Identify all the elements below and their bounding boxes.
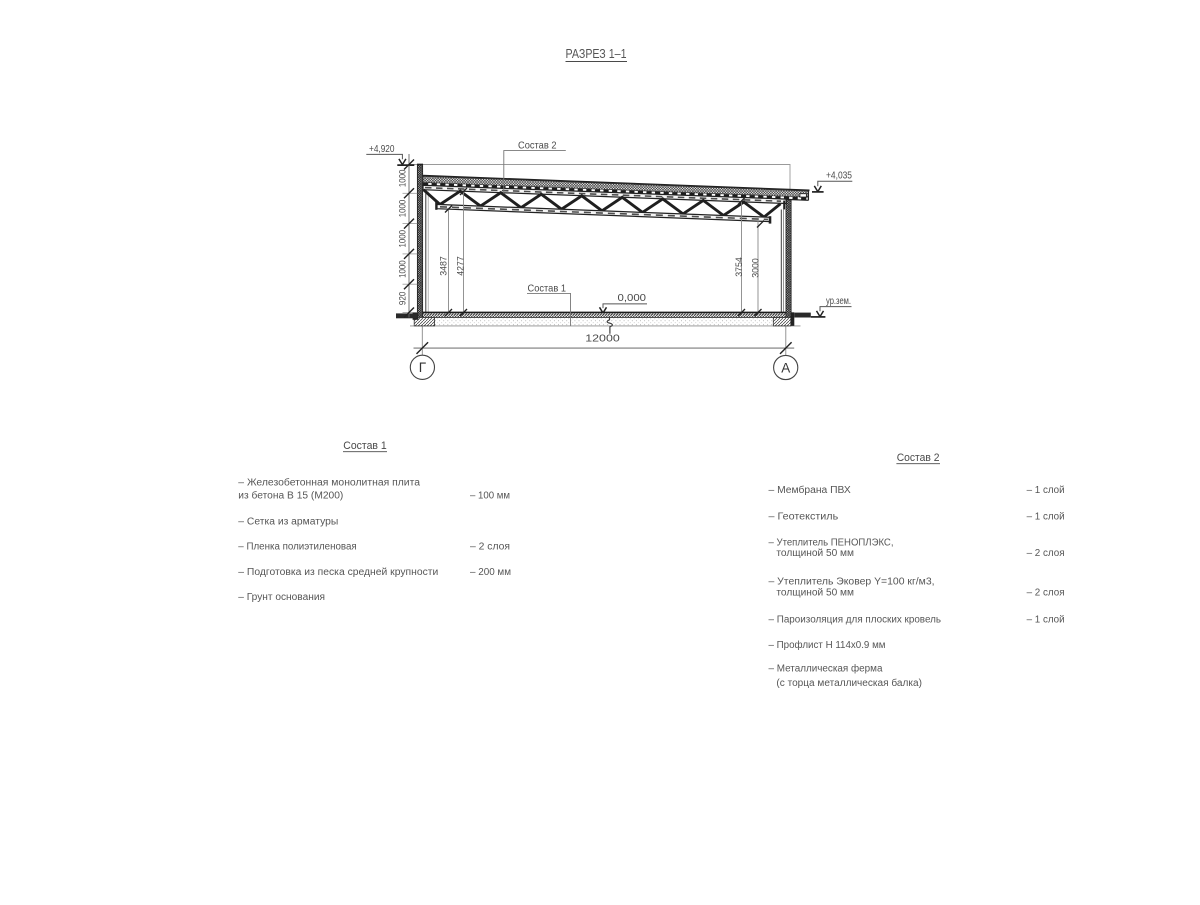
svg-text:3754: 3754 bbox=[734, 257, 744, 277]
svg-text:920: 920 bbox=[398, 292, 408, 306]
svg-text:толщиной 50 мм: толщиной 50 мм bbox=[776, 548, 854, 559]
svg-text:1000: 1000 bbox=[398, 170, 408, 188]
svg-text:РАЗРЕЗ 1–1: РАЗРЕЗ 1–1 bbox=[566, 46, 627, 61]
svg-text:Состав 2: Состав 2 bbox=[518, 140, 557, 152]
svg-text:– 1 слой: – 1 слой bbox=[1027, 615, 1065, 626]
svg-text:– Профлист Н 114х0.9 мм: – Профлист Н 114х0.9 мм bbox=[769, 639, 886, 651]
svg-text:1000: 1000 bbox=[398, 230, 408, 248]
svg-text:– 2 слоя: – 2 слоя bbox=[470, 541, 510, 552]
svg-text:– 1 слой: – 1 слой bbox=[1027, 512, 1065, 523]
svg-text:– Металлическая ферма: – Металлическая ферма bbox=[769, 663, 883, 675]
svg-text:0,000: 0,000 bbox=[618, 292, 647, 304]
svg-text:– Грунт основания: – Грунт основания bbox=[238, 592, 325, 603]
svg-text:+4,920: +4,920 bbox=[369, 143, 395, 155]
svg-text:– Утеплитель Эковер Y=100 кг/м: – Утеплитель Эковер Y=100 кг/м3, bbox=[769, 577, 935, 588]
svg-text:– 2 слоя: – 2 слоя bbox=[1027, 548, 1065, 559]
svg-text:Состав 1: Состав 1 bbox=[343, 440, 386, 452]
svg-text:ур.зем.: ур.зем. bbox=[826, 296, 851, 307]
svg-text:А: А bbox=[781, 360, 790, 375]
svg-text:– Утеплитель ПЕНОПЛЭКС,: – Утеплитель ПЕНОПЛЭКС, bbox=[769, 538, 894, 549]
svg-text:+4,035: +4,035 bbox=[826, 170, 852, 182]
svg-text:– Мембрана ПВХ: – Мембрана ПВХ bbox=[769, 484, 852, 496]
svg-text:– 200 мм: – 200 мм bbox=[470, 567, 511, 578]
svg-text:– Пароизоляция для плоских кро: – Пароизоляция для плоских кровель bbox=[769, 615, 942, 626]
svg-text:(с торца металлическая балка): (с торца металлическая балка) bbox=[776, 677, 922, 689]
svg-text:– 100 мм: – 100 мм bbox=[470, 490, 510, 501]
svg-text:– 2 слоя: – 2 слоя bbox=[1027, 588, 1065, 599]
svg-text:– Железобетонная монолитная: – Железобетонная монолитная плита bbox=[238, 477, 420, 489]
svg-text:4277: 4277 bbox=[455, 256, 465, 276]
svg-text:Состав 2: Состав 2 bbox=[897, 452, 940, 464]
svg-text:– Геотекстиль: – Геотекстиль bbox=[769, 512, 839, 523]
svg-text:– Пленка полиэтиленовая: – Пленка полиэтиленовая bbox=[238, 541, 356, 552]
svg-text:3000: 3000 bbox=[750, 258, 760, 278]
svg-text:толщиной 50 мм: толщиной 50 мм bbox=[776, 588, 854, 599]
svg-text:– Сетка из арматуры: – Сетка из арматуры bbox=[238, 516, 338, 527]
svg-text:12000: 12000 bbox=[585, 334, 620, 345]
svg-text:1000: 1000 bbox=[398, 260, 408, 278]
svg-text:из бетона В 15 (М200): из бетона В 15 (М200) bbox=[238, 489, 343, 501]
svg-text:3487: 3487 bbox=[439, 256, 449, 276]
svg-text:– Подготовка из песка средней: – Подготовка из песка средней крупности bbox=[238, 567, 438, 578]
svg-text:Состав 1: Состав 1 bbox=[528, 283, 567, 295]
svg-text:1000: 1000 bbox=[398, 200, 408, 218]
svg-text:– 1 слой: – 1 слой bbox=[1027, 485, 1065, 496]
svg-text:Г: Г bbox=[419, 360, 427, 375]
